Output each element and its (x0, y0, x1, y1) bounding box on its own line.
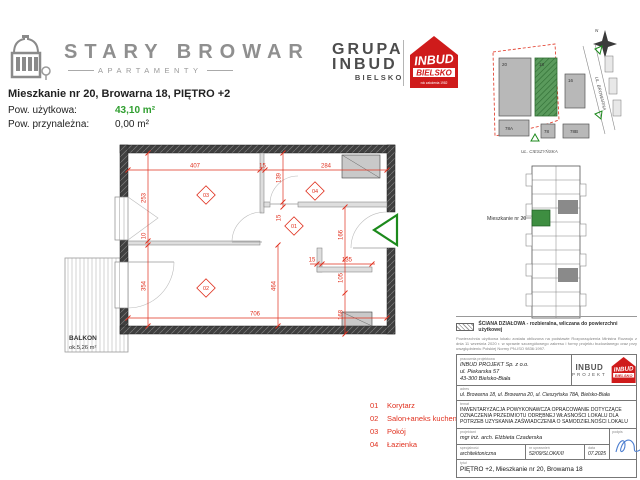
inbud-logo-tagline: rok założenia 1982 (421, 81, 448, 85)
dimension-label: 706 (250, 312, 261, 318)
street-cieszynska-label: UL. CIESZYŃSKA (521, 148, 558, 154)
specialty-value: architektoniczna (460, 451, 522, 457)
legend-label: Korytarz (387, 399, 415, 412)
dimension-label: 10 (142, 232, 148, 239)
dimension-label: 135 (342, 258, 353, 264)
office-addr2: 43-300 Bielsko-Biała (460, 376, 568, 383)
legend-item: 03 Pokój (370, 425, 465, 438)
overview-highlighted-unit (532, 210, 550, 226)
legend-num: 01 (370, 399, 387, 412)
legend-label: Salon+aneks kuchenny (387, 412, 465, 425)
legend-num: 03 (370, 425, 387, 438)
dimension-label: 15 (309, 258, 316, 264)
site-building-20-label: 20 (502, 62, 508, 67)
brand-name: STARY BROWAR (64, 41, 310, 63)
overview-unit-label: Mieszkanie nr 20 (487, 216, 526, 222)
legend-num: 04 (370, 438, 387, 451)
projekt-logo-line1: INBUD (572, 364, 607, 372)
site-building-78-label: 78 (544, 129, 550, 134)
grupa-inbud-logo: GRUPA INBUD BIELSKO (332, 42, 404, 82)
inbud-small-subtext: BIELSKO (614, 373, 633, 378)
usable-area-label: Pow. użytkowa: (8, 104, 115, 118)
site-plan: N 20 18 16 78A 78 78B UL. CIESZYŃSKA UL.… (483, 22, 637, 162)
inbud-logo-text: INBUD (414, 52, 454, 69)
legend-item: 01 Korytarz (370, 399, 465, 412)
inbud-bielsko-logo-small: INBUD BIELSKO (611, 357, 636, 383)
apartment-title: Mieszkanie nr 20, Browarna 18, PIĘTRO +2 (8, 88, 230, 100)
subject-value: INWENTARYZACJA POWYKONAWCZA OPRACOWANIE … (460, 407, 633, 426)
room-tag-number: 04 (312, 189, 318, 195)
dimension-label: 253 (142, 192, 148, 203)
address-value: ul. Browarna 18, ul. Browarna 20, ul. Ci… (460, 392, 633, 398)
drawing-title-value: PIĘTRO +2, Mieszkanie nr 20, Browarna 18 (460, 466, 633, 474)
brand-subtitle: APARTAMENTY (64, 66, 310, 75)
overview-core-lower (558, 268, 578, 282)
logo-divider (403, 40, 404, 86)
address-cell: adres ul. Browarna 18, ul. Browarna 20, … (457, 386, 636, 401)
brand-header: STARY BROWAR APARTAMENTY (8, 30, 318, 86)
grupa-line2: INBUD (332, 57, 404, 72)
wall-type-legend: ŚCIANA DZIAŁOWA - rozbieralna, wliczana … (456, 321, 637, 333)
site-building-78b-label: 78B (570, 129, 578, 134)
dimension-label: 284 (321, 164, 332, 170)
fine-print: Powierzchnia użytkowa lokalu została obl… (456, 336, 637, 351)
dimension-label: 407 (190, 164, 201, 170)
dimension-label: 139 (277, 172, 283, 183)
dimension-label: 166 (339, 229, 345, 240)
usable-area-value: 43,10 m² (115, 104, 155, 118)
title-block-table: pracownia projektowa INBUD PROJEKT Sp. z… (456, 354, 637, 478)
architect-name: mgr inż. arch. Elżbieta Czaderska (460, 435, 606, 442)
dimension-label: 105 (339, 272, 345, 283)
subject-cell: temat INWENTARYZACJA POWYKONAWCZA OPRACO… (457, 401, 636, 429)
design-office-cell: pracownia projektowa INBUD PROJEKT Sp. z… (457, 355, 571, 385)
specialty-cell: specjalność architektoniczna (457, 445, 526, 459)
apartment-info: Mieszkanie nr 20, Browarna 18, PIĘTRO +2… (8, 88, 230, 132)
room-tag-number: 03 (203, 193, 209, 199)
signature-cell: podpis (609, 429, 640, 459)
signature-scribble (612, 435, 640, 455)
rule-right (207, 70, 233, 71)
grupa-line3: BIELSKO (332, 73, 404, 82)
architect-cell: projektant mgr inż. arch. Elżbieta Czade… (457, 429, 609, 445)
site-building-16-label: 16 (568, 78, 574, 83)
grupa-line1: GRUPA (332, 42, 404, 57)
room-tag-number: 01 (291, 224, 297, 230)
license-value: 52/09/SLOKK/II (529, 451, 581, 457)
floor-plan: BALKON ok.5,26 m² (55, 138, 405, 368)
legend-label: Łazienka (387, 438, 417, 451)
office-name: INBUD PROJEKT Sp. z o.o. (460, 362, 568, 369)
street-browarna-label: UL. BROWARNA (594, 76, 607, 111)
adjacent-area-label: Pow. przynależna: (8, 118, 115, 132)
drawing-title-cell: tytuł PIĘTRO +2, Mieszkanie nr 20, Browa… (457, 460, 636, 477)
north-compass-icon: N (593, 28, 617, 58)
dimension-label: 354 (142, 280, 148, 291)
adjacent-area-value: 0,00 m² (115, 118, 149, 132)
title-block: ŚCIANA DZIAŁOWA - rozbieralna, wliczana … (456, 316, 637, 478)
date-cell: data 07.2025 (585, 445, 609, 459)
brewery-building-icon (8, 33, 56, 83)
shaft-boxes (342, 155, 380, 326)
entrance-arrow-icon (374, 215, 397, 245)
projekt-logo-line2: PROJEKT (572, 372, 607, 377)
inbud-bielsko-logo: INBUD BIELSKO rok założenia 1982 (410, 36, 458, 88)
balcony-label: BALKON (69, 335, 97, 342)
inbud-projekt-logo: INBUD PROJEKT (572, 364, 607, 377)
site-building-78a (499, 120, 529, 136)
balcony-area: ok.5,26 m² (69, 345, 96, 351)
room-legend: 01 Korytarz 02 Salon+aneks kuchenny 03 P… (370, 399, 465, 451)
drawing-sheet: STARY BROWAR APARTAMENTY Mieszkanie nr 2… (0, 0, 640, 480)
office-addr1: ul. Piekarska 57 (460, 369, 568, 376)
partition-wall-sample (456, 323, 474, 331)
legend-num: 02 (370, 412, 387, 425)
license-cell: nr uprawnień 52/09/SLOKK/II (526, 445, 585, 459)
brand-subtitle-text: APARTAMENTY (98, 66, 203, 75)
dimension-label: 15 (259, 164, 266, 170)
wall-legend-text: ŚCIANA DZIAŁOWA - rozbieralna, wliczana … (478, 321, 637, 333)
dimension-label: 168 (339, 309, 345, 320)
dimension-label: 15 (277, 214, 283, 221)
legend-item: 02 Salon+aneks kuchenny (370, 412, 465, 425)
window-upper (115, 197, 158, 240)
site-building-18-label: 18 (539, 62, 545, 67)
legend-item: 04 Łazienka (370, 438, 465, 451)
legend-label: Pokój (387, 425, 406, 438)
site-building-78a-label: 78A (505, 126, 513, 131)
inbud-logo-subtext: BIELSKO (416, 69, 452, 78)
date-value: 07.2025 (588, 451, 606, 457)
north-label: N (595, 28, 599, 33)
dimension-label: 464 (272, 280, 278, 291)
overview-core-upper (558, 200, 578, 214)
office-logos-cell: INBUD PROJEKT INBUD BIELSKO (571, 355, 636, 385)
room-tag-number: 02 (203, 286, 209, 292)
rule-left (68, 70, 94, 71)
floor-overview: Mieszkanie nr 20 (486, 160, 616, 325)
